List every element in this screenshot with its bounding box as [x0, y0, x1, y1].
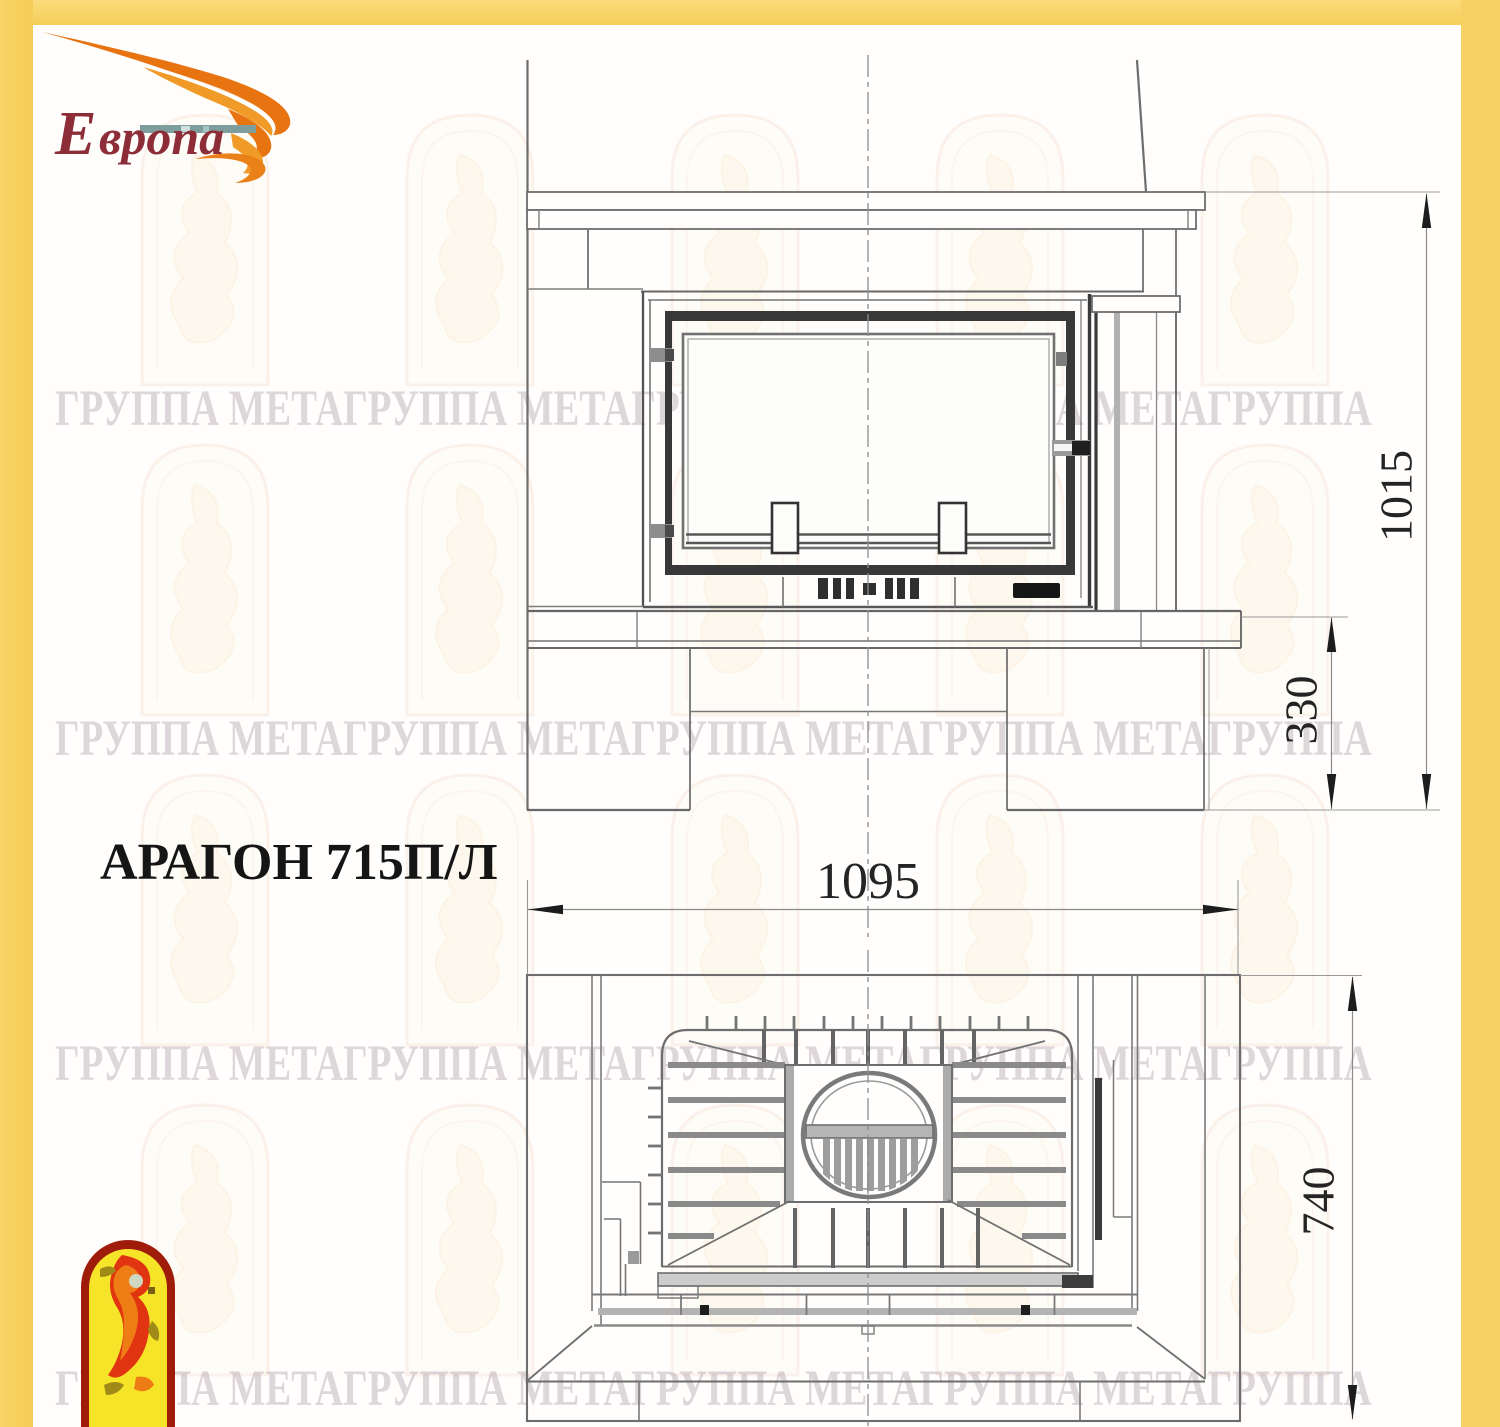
- svg-text:вропа: вропа: [99, 109, 224, 165]
- svg-text:1095: 1095: [816, 853, 920, 910]
- svg-text:740: 740: [1293, 1167, 1344, 1236]
- svg-text:330: 330: [1276, 676, 1327, 745]
- svg-text:Е: Е: [54, 100, 96, 168]
- svg-text:1015: 1015: [1371, 450, 1422, 542]
